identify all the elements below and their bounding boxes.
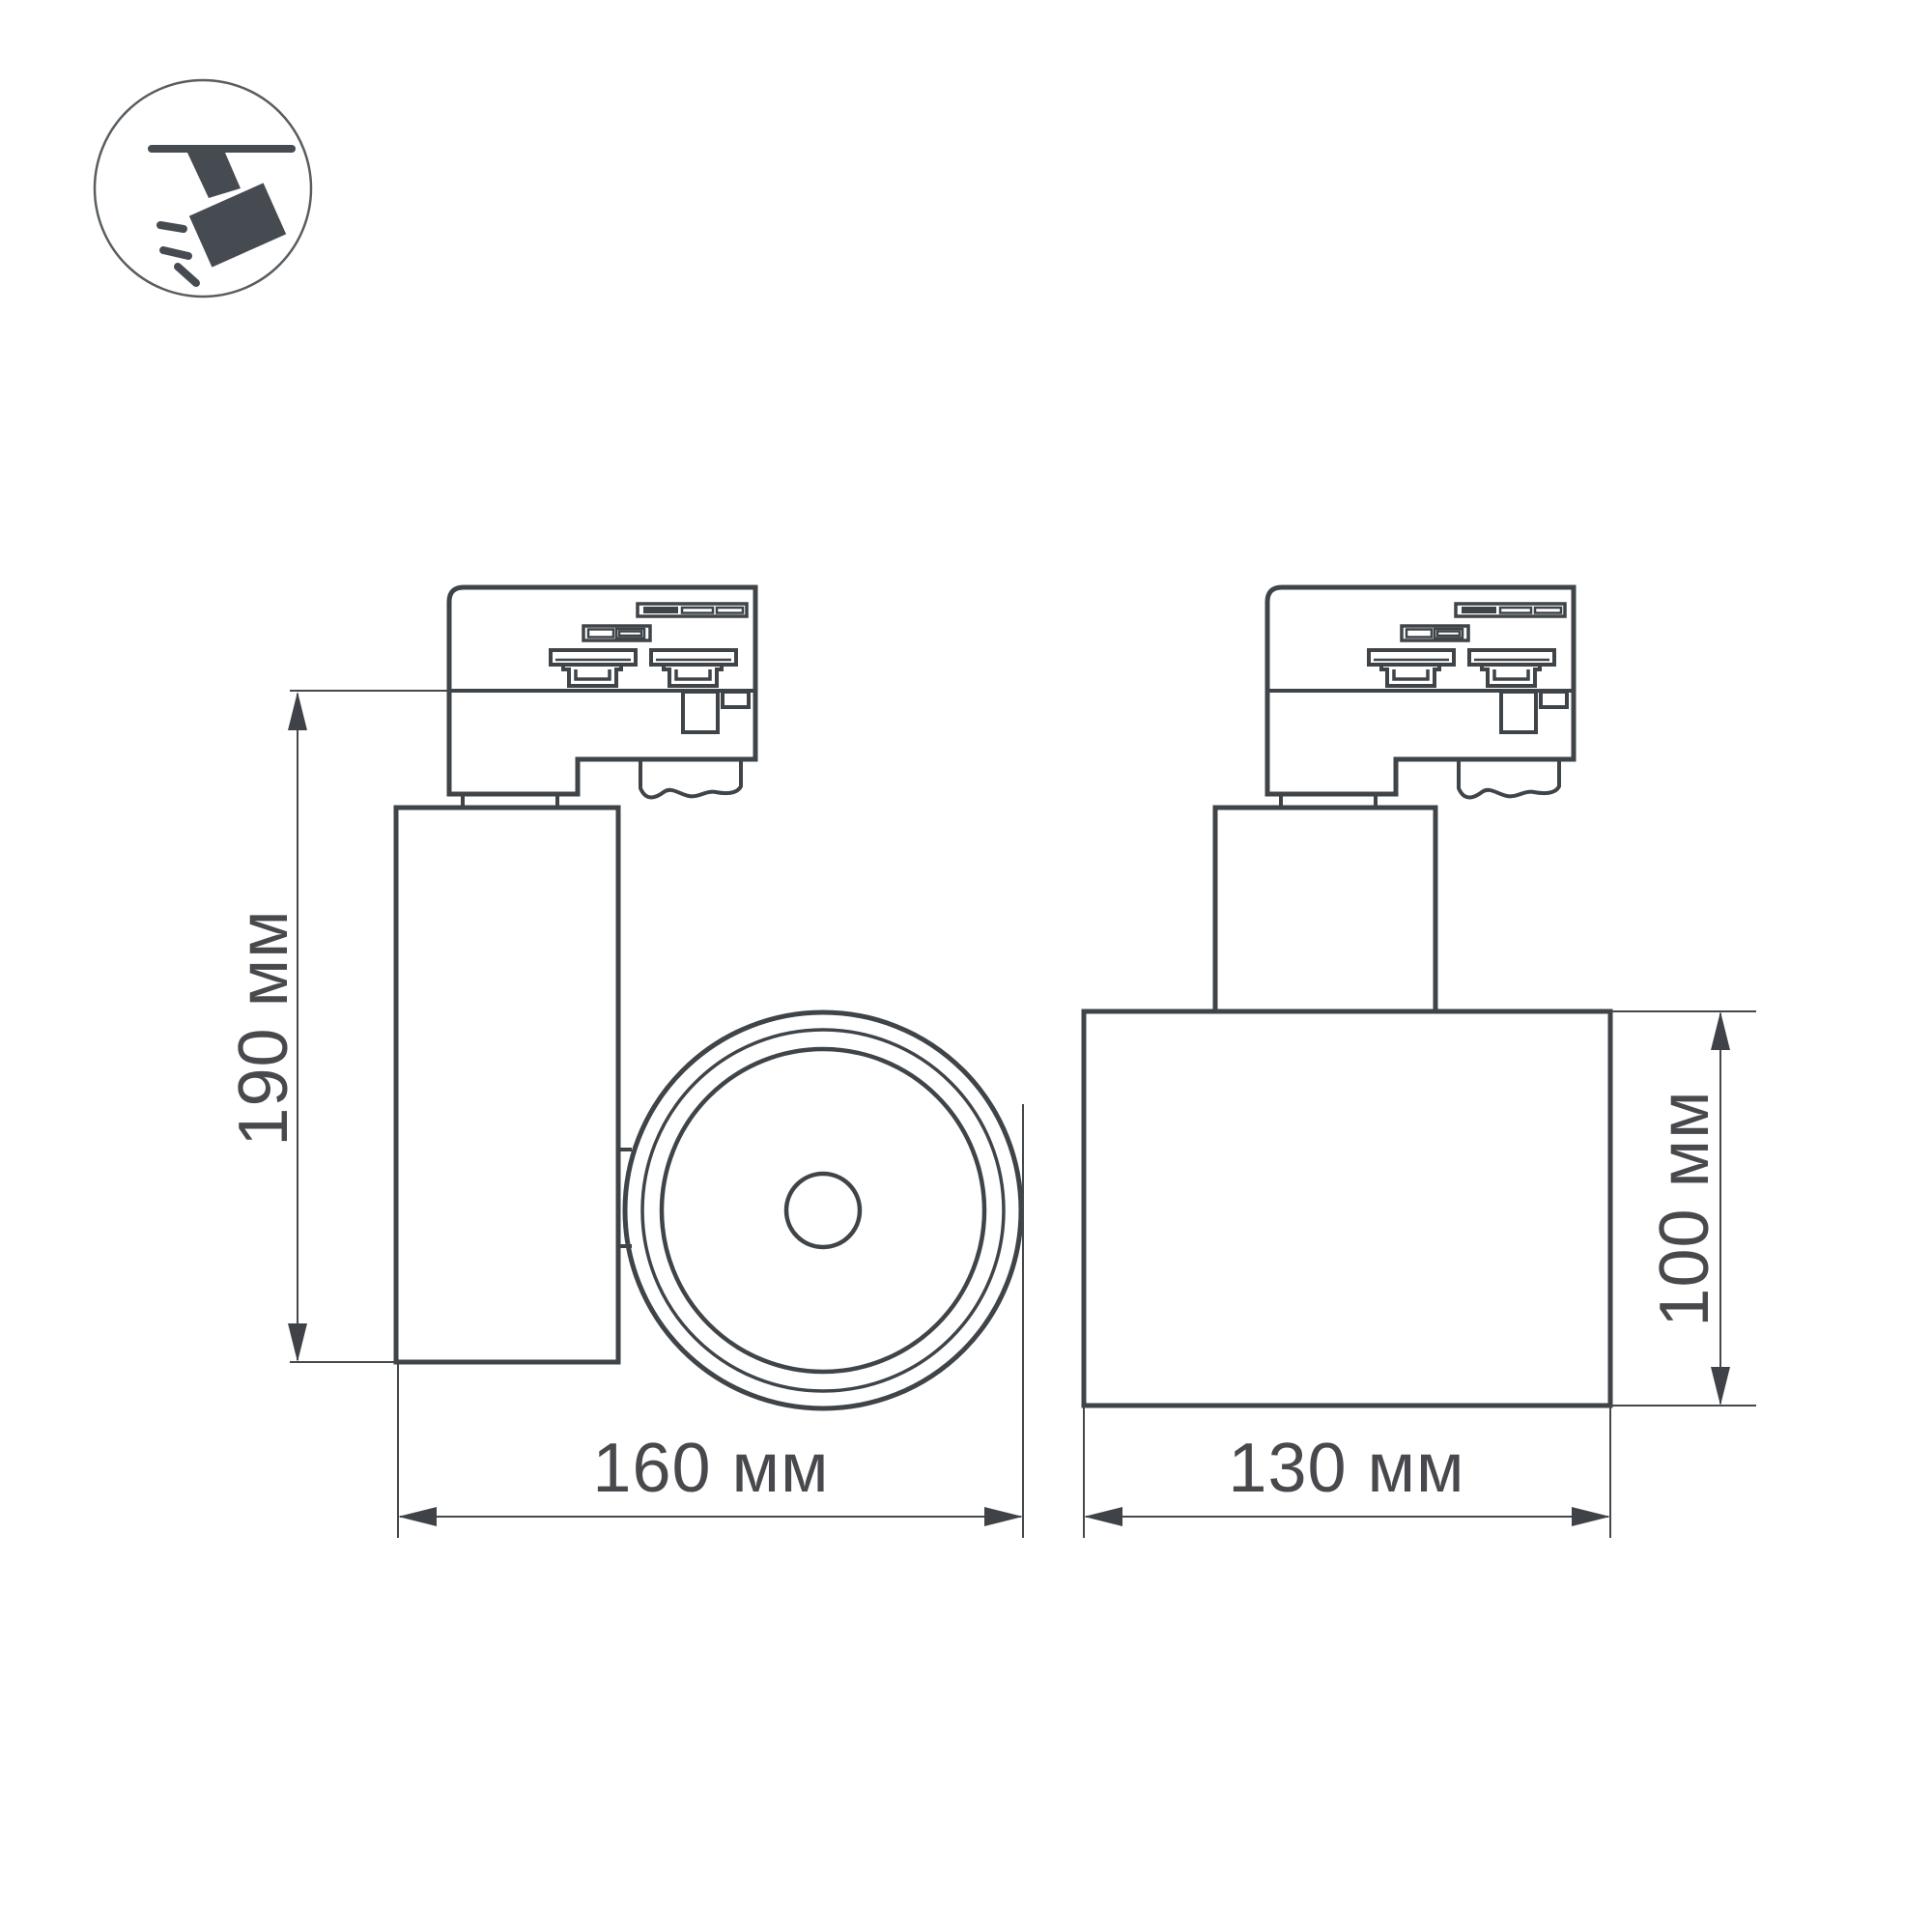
arrowhead-left (1084, 1507, 1122, 1526)
track-adapter (1267, 587, 1574, 798)
arrowhead-down (1711, 1367, 1730, 1406)
dim-label-height-side: 190 мм (225, 909, 302, 1146)
arrowhead-down (288, 1323, 307, 1362)
arrowhead-up (1711, 1011, 1730, 1050)
arrowhead-left (398, 1507, 437, 1526)
badge-light-ray (163, 250, 188, 256)
dimension-height-side: 190 мм (225, 691, 449, 1362)
dimension-width-front: 130 мм (1084, 1406, 1610, 1538)
dimension-height-front: 100 мм (1610, 1011, 1756, 1406)
lens-face (625, 1012, 1021, 1408)
track-spotlight-icon (95, 80, 311, 297)
badge-light-ray (178, 267, 196, 283)
arrowhead-right (984, 1507, 1023, 1526)
dimension-width-side: 160 мм (398, 1104, 1023, 1538)
badge-circle (95, 80, 311, 297)
front-view: 130 мм 100 мм (1084, 587, 1756, 1538)
arrowhead-up (288, 692, 307, 730)
technical-drawing: 190 мм 160 мм 130 мм (0, 0, 1932, 1932)
lamp-body-side (396, 808, 618, 1362)
badge-stem (187, 153, 241, 198)
badge-light-ray (160, 225, 184, 229)
arrowhead-right (1572, 1507, 1610, 1526)
driver-box (1215, 808, 1435, 1011)
led-center (786, 1174, 860, 1247)
lamp-body-front (1084, 1011, 1610, 1406)
dim-label-height-front: 100 мм (1646, 1090, 1723, 1326)
side-view: 190 мм 160 мм (225, 587, 1023, 1538)
track-adapter (449, 587, 755, 798)
dim-label-width-front: 130 мм (1228, 1430, 1464, 1507)
dim-label-width-side: 160 мм (592, 1430, 829, 1507)
drawing-canvas: 190 мм 160 мм 130 мм (0, 0, 1932, 1932)
badge-lamp-head (189, 183, 286, 267)
